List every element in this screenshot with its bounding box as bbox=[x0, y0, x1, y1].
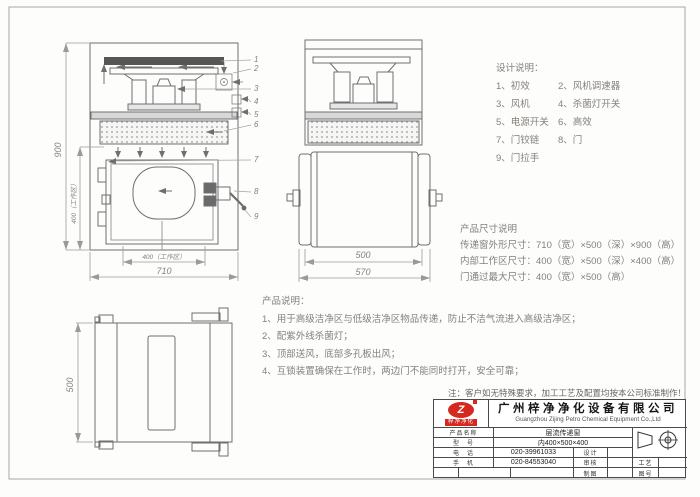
logo-glyph: Z bbox=[458, 405, 465, 415]
dim-front-width: 710 bbox=[156, 266, 171, 276]
logo-text: 梓净净化 bbox=[445, 419, 477, 426]
dim-front-height: 900 bbox=[53, 142, 63, 157]
draw-value bbox=[608, 468, 633, 478]
tel-value: 020-39961033 bbox=[494, 448, 574, 458]
top-view-dimensions bbox=[75, 323, 93, 442]
callout-4: 4 bbox=[254, 97, 259, 106]
mobile-value: 020-84553040 bbox=[494, 458, 574, 468]
dim-side-inner: 500 bbox=[355, 250, 370, 260]
draw-label: 制图 bbox=[574, 468, 608, 478]
check-label: 审核 bbox=[574, 458, 608, 468]
logo-cell: Z 梓净净化 bbox=[434, 400, 489, 428]
signature-cell bbox=[511, 468, 574, 478]
callout-8: 8 bbox=[254, 187, 259, 196]
callout-3: 3 bbox=[254, 84, 259, 93]
design-note-item: 7、门铰链 bbox=[496, 132, 558, 150]
projection-symbol-icon bbox=[633, 428, 683, 452]
callout-9: 9 bbox=[254, 212, 259, 221]
size-notes: 产品尺寸说明 传递窗外形尺寸：710（宽）×500（深）×900（高） 内部工作… bbox=[460, 222, 680, 286]
uv-lamp-switch bbox=[232, 95, 241, 104]
design-label: 设计 bbox=[574, 448, 608, 458]
product-notes: 产品说明： 1、用于高级洁净区与低级洁净区物品传递，防止不洁气流进入高级洁净区；… bbox=[262, 293, 581, 381]
design-note-item: 1、初效 bbox=[496, 78, 558, 96]
sheet-no-label: 图号 bbox=[633, 468, 659, 478]
footnote: 注：客户如无特殊要求，加工工艺及配置均按本公司标准制作！ bbox=[430, 387, 686, 399]
check-value bbox=[608, 458, 633, 468]
design-note-item: 6、高效 bbox=[558, 114, 620, 132]
size-note-line: 门通过最大尺寸：400（宽）×500（高） bbox=[460, 270, 680, 286]
projection-cell bbox=[633, 428, 687, 458]
tel-label: 电 话 bbox=[434, 448, 494, 458]
design-note-item: 4、杀菌灯开关 bbox=[558, 96, 620, 114]
hepa-filter bbox=[100, 121, 228, 144]
callout-5: 5 bbox=[254, 110, 259, 119]
design-notes-title: 设计说明： bbox=[496, 60, 620, 78]
sheet-no-value bbox=[659, 468, 687, 478]
product-note-line: 1、用于高级洁净区与低级洁净区物品传递，防止不洁气流进入高级洁净区； bbox=[262, 311, 581, 329]
callout-numbers: 1 2 3 4 5 6 7 8 9 bbox=[253, 55, 259, 221]
callout-1: 1 bbox=[254, 55, 258, 64]
company-logo: Z 梓净净化 bbox=[445, 402, 477, 426]
callout-7: 7 bbox=[254, 155, 259, 164]
pre-filter bbox=[104, 57, 224, 65]
size-notes-title: 产品尺寸说明 bbox=[460, 222, 680, 238]
callout-6: 6 bbox=[254, 120, 259, 129]
airflow-arrows bbox=[115, 147, 209, 158]
model-value: 内400×500×400 bbox=[494, 438, 633, 448]
drawing-sheet: 900 400（工作区） 400（工作区） 710 1 2 3 4 5 6 7 … bbox=[0, 0, 700, 497]
title-block: Z 梓净净化 广州梓净净化设备有限公司 Guangzhou Zijing Pet… bbox=[433, 399, 686, 478]
design-note-item: 9、门拉手 bbox=[496, 150, 558, 168]
side-door bbox=[311, 152, 418, 247]
product-name-label: 产品名称 bbox=[434, 428, 494, 438]
door-hinge bbox=[98, 212, 106, 226]
mobile-label: 手 机 bbox=[434, 458, 494, 468]
dim-work-width: 400（工作区） bbox=[142, 253, 185, 261]
company-cell: 广州梓净净化设备有限公司 Guangzhou Zijing Petro Chem… bbox=[489, 400, 687, 428]
design-note-item: 2、风机调速器 bbox=[558, 78, 620, 96]
door-handle bbox=[204, 183, 246, 210]
design-note-item bbox=[558, 150, 620, 168]
design-note-item: 3、风机 bbox=[496, 96, 558, 114]
lamp-slot bbox=[148, 336, 175, 430]
dim-top-depth: 500 bbox=[65, 377, 75, 392]
model-label: 型 号 bbox=[434, 438, 494, 448]
product-name-value: 层流传递窗 bbox=[494, 428, 633, 438]
company-name-cn: 广州梓净净化设备有限公司 bbox=[498, 403, 678, 416]
product-notes-title: 产品说明： bbox=[262, 293, 581, 311]
company-name-en: Guangzhou Zijing Petro Chemical Equipmen… bbox=[515, 416, 661, 424]
design-note-item: 5、电源开关 bbox=[496, 114, 558, 132]
top-view bbox=[95, 308, 232, 456]
design-notes: 设计说明： 1、初效2、风机调速器 3、风机4、杀菌灯开关 5、电源开关6、高效… bbox=[496, 60, 620, 168]
size-note-line: 传递窗外形尺寸：710（宽）×500（深）×900（高） bbox=[460, 238, 680, 254]
product-note-line: 4、互锁装置确保在工作时，两边门不能同时打开，安全可靠； bbox=[262, 363, 581, 381]
door-hinge bbox=[98, 168, 106, 182]
side-view bbox=[287, 40, 442, 247]
craft-value bbox=[659, 458, 687, 468]
front-view-dimensions bbox=[63, 43, 238, 281]
dim-work-height: 400（工作区） bbox=[70, 180, 78, 223]
signature-cell bbox=[459, 468, 511, 478]
product-note-line: 2、配紫外线杀菌灯； bbox=[262, 328, 581, 346]
callout-2: 2 bbox=[253, 64, 259, 73]
size-note-line: 内部工作区尺寸：400（宽）×500（深）×400（高） bbox=[460, 254, 680, 270]
craft-label: 工艺 bbox=[633, 458, 659, 468]
design-value bbox=[608, 448, 633, 458]
dim-side-outer: 570 bbox=[355, 267, 370, 277]
design-note-item: 8、门 bbox=[558, 132, 620, 150]
product-note-line: 3、顶部送风，底部多孔板出风； bbox=[262, 346, 581, 364]
signature-cell bbox=[434, 468, 459, 478]
front-door bbox=[98, 160, 218, 250]
